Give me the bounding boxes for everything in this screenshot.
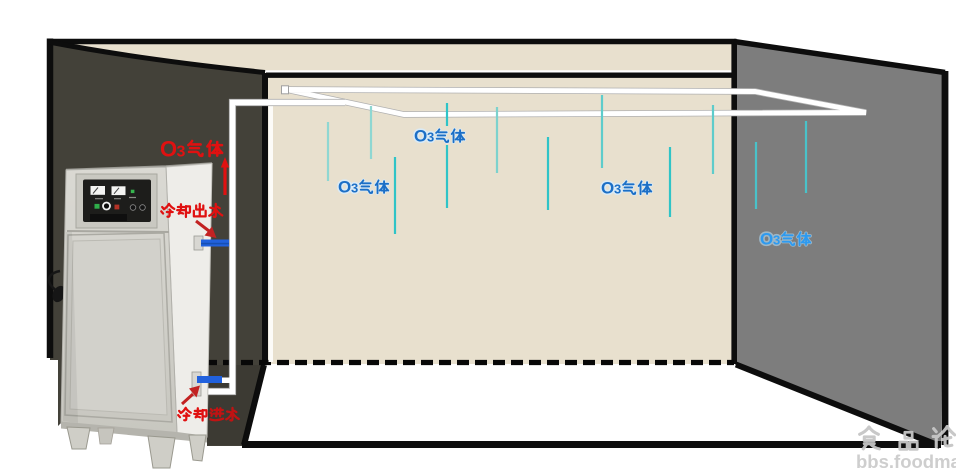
svg-text:3: 3: [614, 182, 621, 197]
svg-text:O: O: [160, 137, 177, 162]
svg-text:O: O: [601, 179, 614, 198]
svg-text:bbs.foodma: bbs.foodma: [856, 451, 956, 472]
svg-text:3: 3: [773, 233, 780, 248]
svg-text:3: 3: [177, 144, 186, 161]
svg-text:3: 3: [427, 130, 434, 145]
svg-text:O: O: [414, 127, 427, 146]
svg-text:O: O: [338, 178, 351, 197]
svg-text:O: O: [760, 230, 773, 249]
svg-text:3: 3: [351, 181, 358, 196]
